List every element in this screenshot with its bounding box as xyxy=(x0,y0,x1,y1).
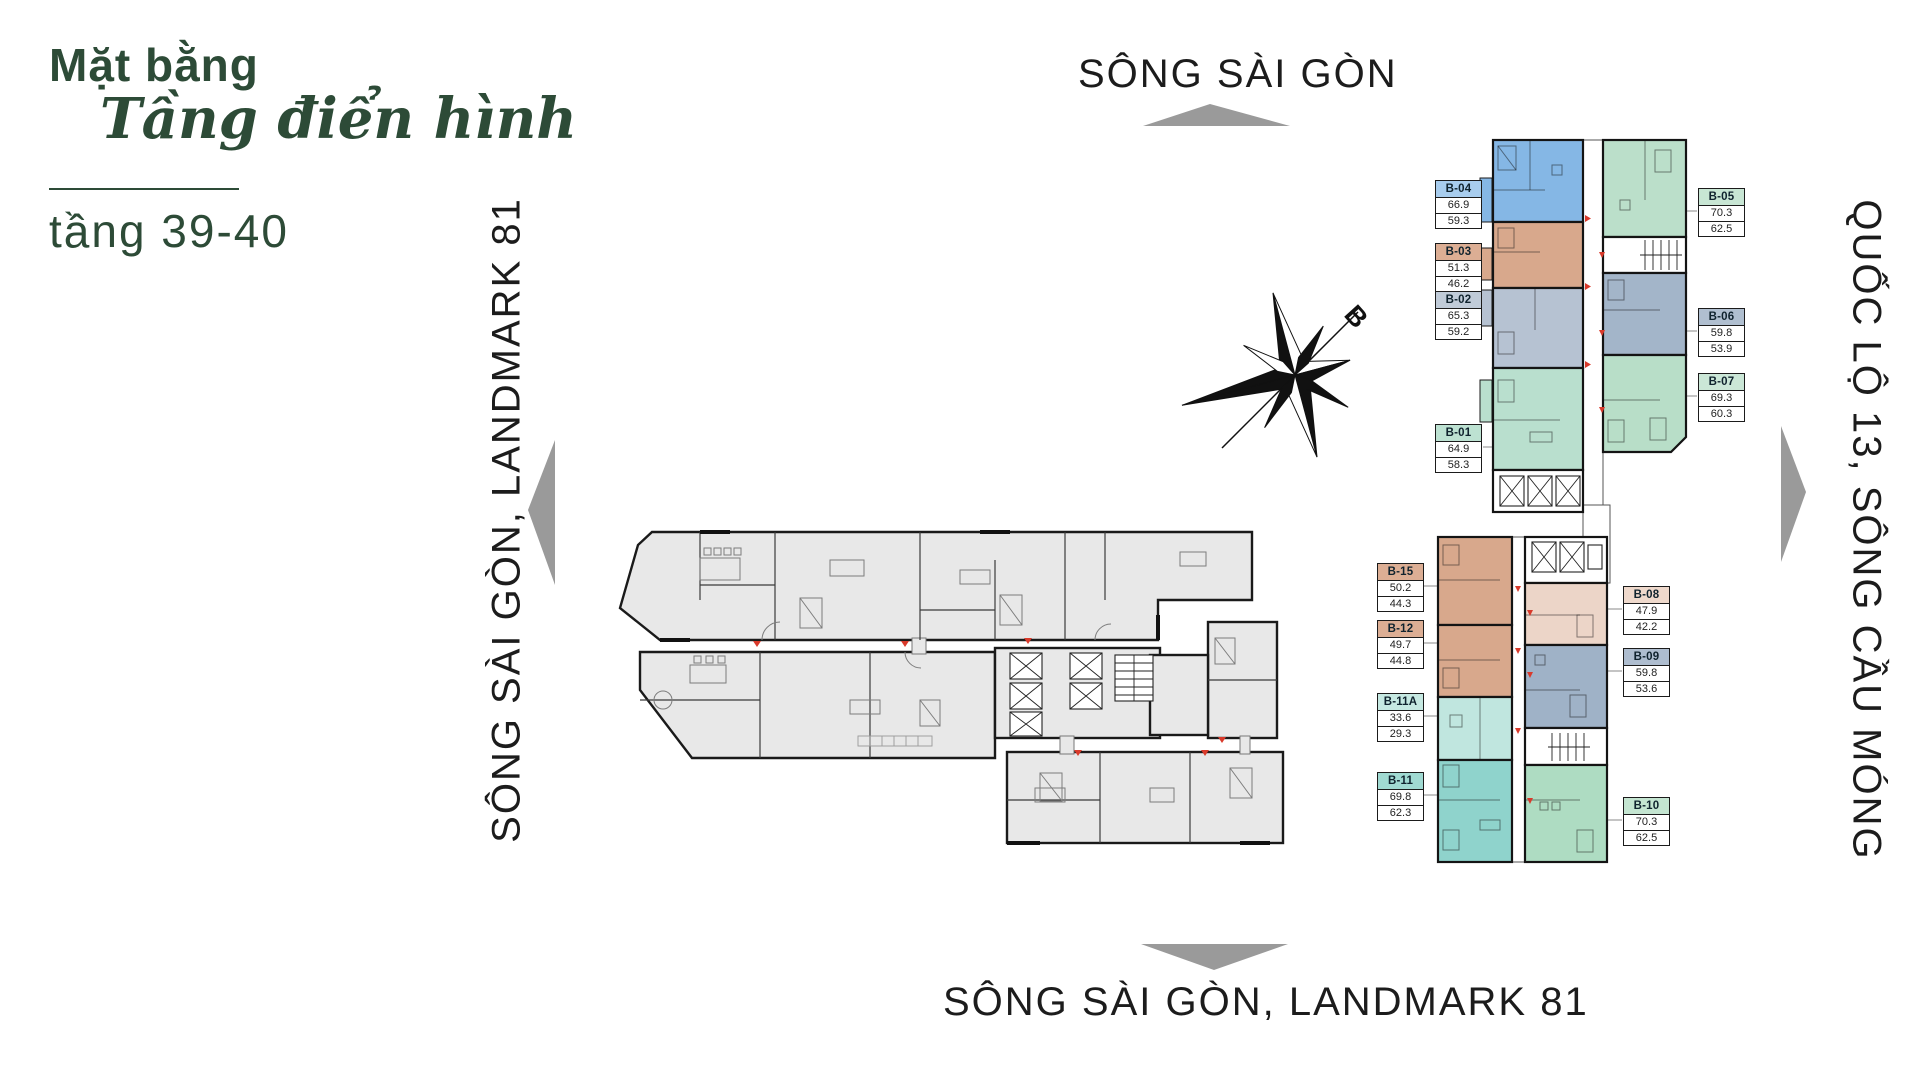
unit-area-net: 42.2 xyxy=(1624,619,1669,635)
unit-label-b06: B-06 59.8 53.9 xyxy=(1698,308,1745,357)
unit-id: B-12 xyxy=(1378,621,1423,638)
left-building-block-mid xyxy=(1150,655,1208,735)
unit-area-net: 62.5 xyxy=(1624,830,1669,846)
floorplan-page: Mặt bằng Tầng điển hình tầng 39-40 SÔNG … xyxy=(0,0,1920,1080)
unit-area-total: 69.8 xyxy=(1378,790,1423,805)
unit-id: B-07 xyxy=(1699,374,1744,391)
unit-id: B-06 xyxy=(1699,309,1744,326)
unit-label-b10: B-10 70.3 62.5 xyxy=(1623,797,1670,846)
unit-area-total: 69.3 xyxy=(1699,391,1744,406)
unit-area-total: 59.8 xyxy=(1699,326,1744,341)
unit-area-b04 xyxy=(1493,140,1583,222)
unit-label-b11a: B-11A 33.6 29.3 xyxy=(1377,693,1424,742)
unit-area-total: 64.9 xyxy=(1436,442,1481,457)
unit-area-net: 59.3 xyxy=(1436,213,1481,229)
unit-area-total: 47.9 xyxy=(1624,604,1669,619)
unit-area-total: 59.8 xyxy=(1624,666,1669,681)
unit-label-b12: B-12 49.7 44.8 xyxy=(1377,620,1424,669)
unit-label-b07: B-07 69.3 60.3 xyxy=(1698,373,1745,422)
unit-area-total: 51.3 xyxy=(1436,261,1481,276)
unit-area-b11a xyxy=(1438,697,1512,760)
unit-area-b07 xyxy=(1603,355,1686,452)
arrow-left-icon xyxy=(528,440,555,585)
unit-label-b05: B-05 70.3 62.5 xyxy=(1698,188,1745,237)
unit-area-b11 xyxy=(1438,760,1512,862)
unit-id: B-11A xyxy=(1378,694,1423,711)
unit-area-net: 62.5 xyxy=(1699,221,1744,237)
compass-rose: B xyxy=(1160,278,1374,487)
unit-area-total: 66.9 xyxy=(1436,198,1481,213)
unit-area-b09 xyxy=(1525,645,1607,728)
unit-id: B-04 xyxy=(1436,181,1481,198)
unit-area-b01 xyxy=(1493,368,1583,470)
unit-area-net: 44.3 xyxy=(1378,596,1423,612)
unit-area-total: 50.2 xyxy=(1378,581,1423,596)
compass-north-label: B xyxy=(1339,299,1374,334)
unit-id: B-10 xyxy=(1624,798,1669,815)
unit-area-b12 xyxy=(1438,625,1512,697)
unit-area-total: 33.6 xyxy=(1378,711,1423,726)
unit-area-net: 58.3 xyxy=(1436,457,1481,473)
unit-id: B-11 xyxy=(1378,773,1423,790)
unit-area-net: 59.2 xyxy=(1436,324,1481,340)
unit-id: B-03 xyxy=(1436,244,1481,261)
unit-id: B-01 xyxy=(1436,425,1481,442)
unit-area-net: 44.8 xyxy=(1378,653,1423,669)
unit-area-total: 70.3 xyxy=(1624,815,1669,830)
unit-label-b09: B-09 59.8 53.6 xyxy=(1623,648,1670,697)
unit-label-b04: B-04 66.9 59.3 xyxy=(1435,180,1482,229)
unit-label-b11: B-11 69.8 62.3 xyxy=(1377,772,1424,821)
unit-area-total: 70.3 xyxy=(1699,206,1744,221)
unit-id: B-08 xyxy=(1624,587,1669,604)
unit-id: B-15 xyxy=(1378,564,1423,581)
unit-area-total: 65.3 xyxy=(1436,309,1481,324)
floorplan-drawing: B xyxy=(0,0,1920,1080)
unit-area-b03 xyxy=(1493,222,1583,288)
unit-label-b08: B-08 47.9 42.2 xyxy=(1623,586,1670,635)
unit-area-b15 xyxy=(1438,537,1512,625)
unit-area-net: 29.3 xyxy=(1378,726,1423,742)
unit-label-b15: B-15 50.2 44.3 xyxy=(1377,563,1424,612)
left-building-plan xyxy=(620,532,1283,843)
unit-id: B-09 xyxy=(1624,649,1669,666)
unit-area-net: 53.9 xyxy=(1699,341,1744,357)
unit-area-total: 49.7 xyxy=(1378,638,1423,653)
unit-area-net: 46.2 xyxy=(1436,276,1481,292)
unit-area-b10 xyxy=(1525,765,1607,862)
unit-id: B-05 xyxy=(1699,189,1744,206)
unit-label-b02: B-02 65.3 59.2 xyxy=(1435,291,1482,340)
unit-area-net: 53.6 xyxy=(1624,681,1669,697)
unit-label-b03: B-03 51.3 46.2 xyxy=(1435,243,1482,292)
unit-area-net: 60.3 xyxy=(1699,406,1744,422)
unit-area-b08 xyxy=(1525,583,1607,645)
arrow-up-icon xyxy=(1143,104,1290,126)
unit-area-b02 xyxy=(1493,288,1583,368)
unit-id: B-02 xyxy=(1436,292,1481,309)
unit-label-b01: B-01 64.9 58.3 xyxy=(1435,424,1482,473)
left-building-mid-wing xyxy=(640,652,995,758)
unit-area-net: 62.3 xyxy=(1378,805,1423,821)
arrow-down-icon xyxy=(1141,944,1288,970)
unit-area-b06 xyxy=(1603,273,1686,355)
arrow-right-icon xyxy=(1781,426,1806,562)
